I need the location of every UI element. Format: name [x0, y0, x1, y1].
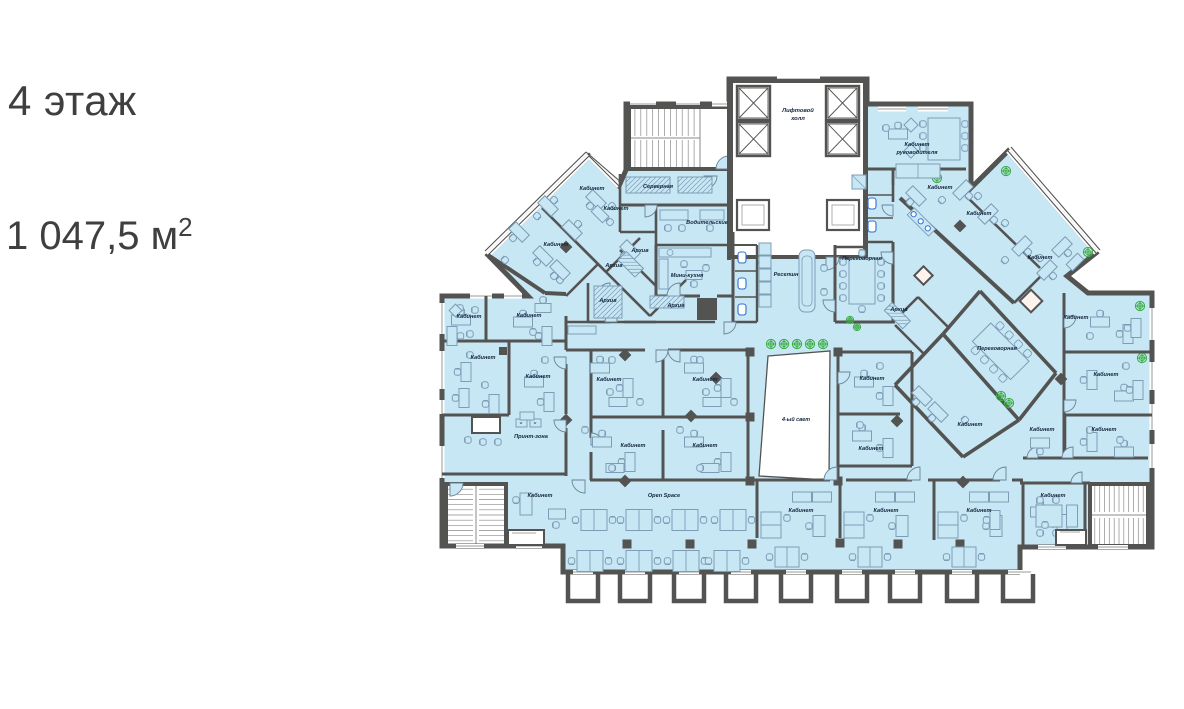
svg-text:Кабинет: Кабинет: [526, 373, 551, 380]
svg-text:Кабинет: Кабинет: [528, 492, 553, 499]
svg-text:Архив: Архив: [604, 263, 623, 269]
svg-text:4 этаж: 4 этаж: [8, 77, 137, 124]
svg-text:Кабинет: Кабинет: [1030, 426, 1055, 433]
svg-text:Кабинет: Кабинет: [597, 376, 622, 383]
svg-text:Принт-зона: Принт-зона: [514, 434, 548, 440]
svg-text:Серверная: Серверная: [643, 184, 674, 190]
svg-text:Open Space: Open Space: [648, 493, 680, 499]
svg-text:Кабинет: Кабинет: [580, 185, 605, 192]
svg-text:холл: холл: [790, 116, 805, 122]
svg-text:Кабинет: Кабинет: [1092, 426, 1117, 433]
svg-text:Водительские: Водительские: [686, 220, 728, 226]
svg-text:Кабинет: Кабинет: [693, 442, 718, 449]
svg-text:Кабинет: Кабинет: [1064, 314, 1089, 321]
svg-text:Переговорная: Переговорная: [977, 346, 1017, 352]
svg-text:Кабинет: Кабинет: [471, 354, 496, 361]
svg-text:Кабинет: Кабинет: [967, 210, 992, 217]
svg-text:Кабинет: Кабинет: [621, 442, 646, 449]
svg-text:Кабинет: Кабинет: [905, 141, 930, 148]
svg-text:Кабинет: Кабинет: [517, 312, 542, 319]
svg-text:Лифтовой: Лифтовой: [781, 107, 814, 114]
svg-text:Архив: Архив: [630, 248, 649, 254]
svg-text:руководителя: руководителя: [895, 150, 938, 156]
svg-text:Кабинет: Кабинет: [604, 205, 629, 212]
svg-text:Архив: Архив: [666, 303, 685, 309]
svg-text:Кабинет: Кабинет: [457, 313, 482, 320]
svg-text:Кабинет: Кабинет: [928, 184, 953, 191]
svg-text:4-ый свет: 4-ый свет: [781, 416, 810, 423]
svg-text:Кабинет: Кабинет: [874, 507, 899, 514]
svg-text:1 047,5 м2: 1 047,5 м2: [6, 212, 193, 258]
svg-text:Мини-кухня: Мини-кухня: [671, 273, 704, 279]
svg-text:Переговорная: Переговорная: [842, 256, 882, 262]
svg-text:Кабинет: Кабинет: [789, 507, 814, 514]
svg-text:Кабинет: Кабинет: [693, 376, 718, 383]
svg-text:Кабинет: Кабинет: [859, 445, 884, 452]
svg-text:Кабинет: Кабинет: [1028, 254, 1053, 261]
svg-text:Кабинет: Кабинет: [544, 241, 569, 248]
svg-text:Архив: Архив: [598, 298, 617, 304]
svg-text:Кабинет: Кабинет: [1094, 371, 1119, 378]
svg-text:Ресепшн: Ресепшн: [774, 272, 799, 278]
svg-text:Кабинет: Кабинет: [860, 375, 885, 382]
svg-text:Архив: Архив: [889, 307, 908, 313]
svg-text:Кабинет: Кабинет: [967, 507, 992, 514]
svg-text:Кабинет: Кабинет: [958, 421, 983, 428]
svg-text:Кабинет: Кабинет: [1041, 492, 1066, 499]
